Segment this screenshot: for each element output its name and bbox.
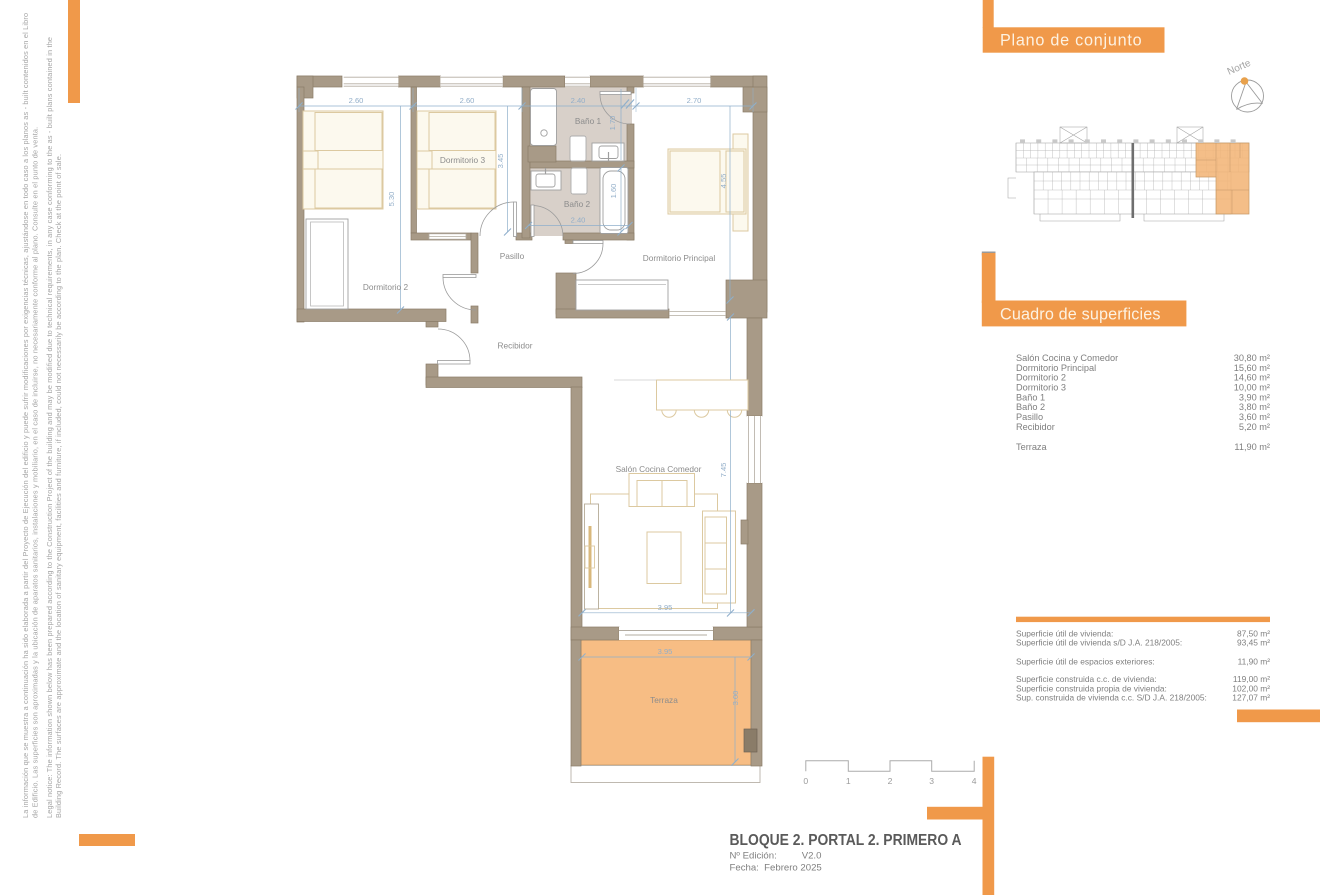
svg-text:Baño 2: Baño 2 [564,199,591,209]
svg-text:Dormitorio Principal: Dormitorio Principal [643,253,716,263]
svg-text:3,80 m²: 3,80 m² [1239,402,1270,412]
svg-text:11,90 m²: 11,90 m² [1234,442,1270,452]
svg-text:14,60 m²: 14,60 m² [1234,373,1270,383]
svg-text:2: 2 [888,776,893,786]
svg-text:93,45 m²: 93,45 m² [1237,638,1270,648]
svg-text:3.95: 3.95 [658,647,673,656]
svg-text:127,07 m²: 127,07 m² [1232,693,1270,703]
svg-text:Cuadro de superficies: Cuadro de superficies [1000,306,1161,324]
svg-text:7.45: 7.45 [719,463,728,478]
svg-text:Dormitorio 3: Dormitorio 3 [440,155,486,165]
svg-text:Building Record. The surfaces: Building Record. The surfaces are approx… [54,154,63,818]
svg-text:Superficie útil de vivienda s/: Superficie útil de vivienda s/D J.A. 218… [1016,638,1182,648]
svg-text:Dormitorio 2: Dormitorio 2 [1016,373,1066,383]
svg-text:Salón Cocina Comedor: Salón Cocina Comedor [616,464,702,474]
svg-text:Pasillo: Pasillo [500,251,525,261]
svg-text:11,90 m²: 11,90 m² [1238,656,1271,666]
svg-text:Baño 1: Baño 1 [575,116,602,126]
svg-text:Terraza: Terraza [1016,442,1048,452]
svg-text:10,00 m²: 10,00 m² [1234,383,1270,393]
svg-text:3,90 m²: 3,90 m² [1239,392,1270,402]
svg-text:Nº Edición:: Nº Edición: [730,851,777,862]
svg-text:Pasillo: Pasillo [1016,412,1043,422]
svg-text:1.60: 1.60 [609,184,618,199]
svg-text:3: 3 [929,776,934,786]
svg-text:5.30: 5.30 [387,192,396,207]
svg-text:15,60 m²: 15,60 m² [1234,363,1270,373]
svg-text:Fecha: Febrero 2025: Fecha: Febrero 2025 [730,863,822,874]
svg-text:La información que se muestra: La información que se muestra a continua… [21,13,30,818]
svg-text:Superficie útil de espacios ex: Superficie útil de espacios exteriores: [1016,656,1155,666]
svg-text:Dormitorio 2: Dormitorio 2 [363,282,409,292]
svg-text:Plano de conjunto: Plano de conjunto [1000,32,1142,50]
svg-text:Dormitorio Principal: Dormitorio Principal [1016,363,1096,373]
svg-text:2.40: 2.40 [571,216,586,225]
svg-text:Baño 1: Baño 1 [1016,392,1045,402]
svg-text:Dormitorio 3: Dormitorio 3 [1016,383,1066,393]
svg-text:Salón Cocina y Comedor: Salón Cocina y Comedor [1016,353,1118,363]
svg-text:4: 4 [972,776,977,786]
svg-text:2.60: 2.60 [349,96,364,105]
svg-text:V2.0: V2.0 [802,851,822,862]
svg-text:2.70: 2.70 [687,96,702,105]
svg-text:Recibidor: Recibidor [1016,422,1055,432]
svg-text:3.95: 3.95 [658,603,673,612]
svg-text:2.60: 2.60 [460,96,475,105]
svg-text:BLOQUE 2. PORTAL 2. PRIMERO A: BLOQUE 2. PORTAL 2. PRIMERO A [730,832,962,849]
svg-text:Baño 2: Baño 2 [1016,402,1045,412]
svg-text:Recibidor: Recibidor [497,341,532,351]
svg-text:Legal notice: The information: Legal notice: The information shown belo… [45,37,54,818]
svg-text:3,60 m²: 3,60 m² [1239,412,1270,422]
svg-text:0: 0 [803,776,808,786]
svg-text:2.40: 2.40 [571,96,586,105]
svg-text:30,80 m²: 30,80 m² [1234,353,1270,363]
svg-text:de Edificio. Las superficies s: de Edificio. Las superficies son aproxim… [31,127,40,818]
svg-text:1.70: 1.70 [608,116,617,131]
svg-text:3.45: 3.45 [496,154,505,169]
svg-text:3.00: 3.00 [731,691,740,706]
svg-text:5,20 m²: 5,20 m² [1239,422,1270,432]
svg-text:1: 1 [846,776,851,786]
svg-text:Terraza: Terraza [650,695,678,705]
svg-text:Sup. construida de vivienda c.: Sup. construida de vivienda c.c. S/D J.A… [1016,693,1207,703]
svg-text:4.55: 4.55 [719,174,728,189]
